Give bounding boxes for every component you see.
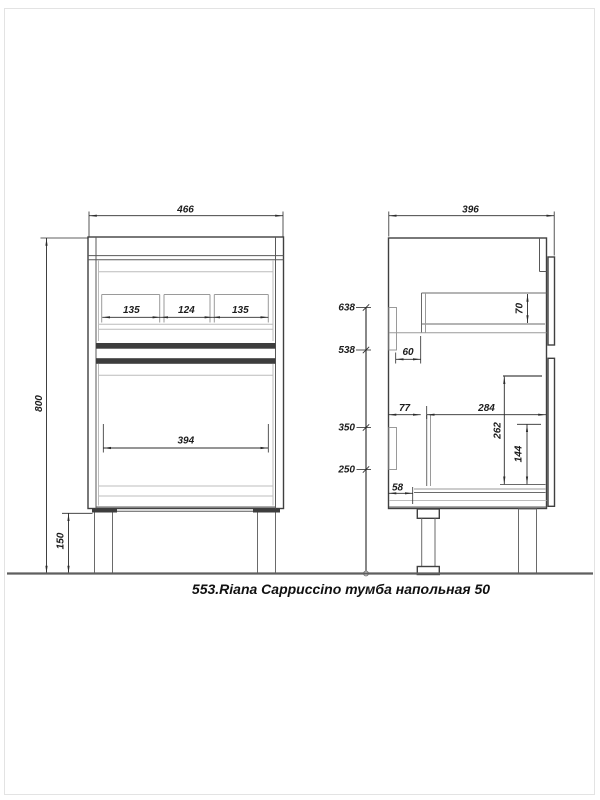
dim-section-right: 135 [232,305,249,316]
bottom-drawer-front-profile [548,358,555,506]
page-border [5,9,595,795]
dim-lower-drawer-width: 394 [177,436,194,447]
dim-bottom-offset: 58 [392,483,404,494]
dim-height-538: 538 [338,345,355,356]
dim-lower-inner-height: 144 [514,445,525,462]
left-leg-cap [92,509,117,513]
technical-drawing-canvas: 135 124 135 394 466 800 [0,0,600,800]
dim-leg-height: 150 [56,532,67,549]
dim-height-638: 638 [338,303,355,314]
dim-overall-depth: 396 [462,205,479,216]
drawer-gap-band-upper [96,343,276,349]
dim-lower-box-height: 262 [493,422,504,440]
front-view: 135 124 135 394 466 800 [34,205,284,574]
dim-section-left: 135 [123,305,140,316]
drawer-gap-band-lower [96,358,276,364]
side-rear-leg [519,509,537,574]
dim-section-middle: 124 [178,305,195,316]
dim-top-box-height: 70 [515,303,526,315]
right-leg-cap [253,509,280,513]
dim-back-offset: 77 [399,403,411,414]
side-cabinet-outline [389,238,547,509]
lower-rail-profile [389,428,397,470]
dim-overall-height: 800 [34,395,45,412]
dim-rail-offset: 60 [402,347,414,358]
dim-height-250: 250 [337,465,355,476]
front-cabinet-outline [88,237,284,509]
dim-inner-depth: 284 [477,403,495,414]
upper-rail-profile [389,308,397,351]
dim-height-350: 350 [338,423,355,434]
side-view: 70 60 77 284 262 144 58 [337,205,554,576]
drawing-caption: 553.Riana Cappuccino тумба напольная 50 [192,581,490,597]
top-drawer-front-profile [548,257,555,345]
dim-overall-width: 466 [176,205,194,216]
drawing-page: 135 124 135 394 466 800 [0,0,600,800]
side-front-leg-cap [417,509,439,518]
